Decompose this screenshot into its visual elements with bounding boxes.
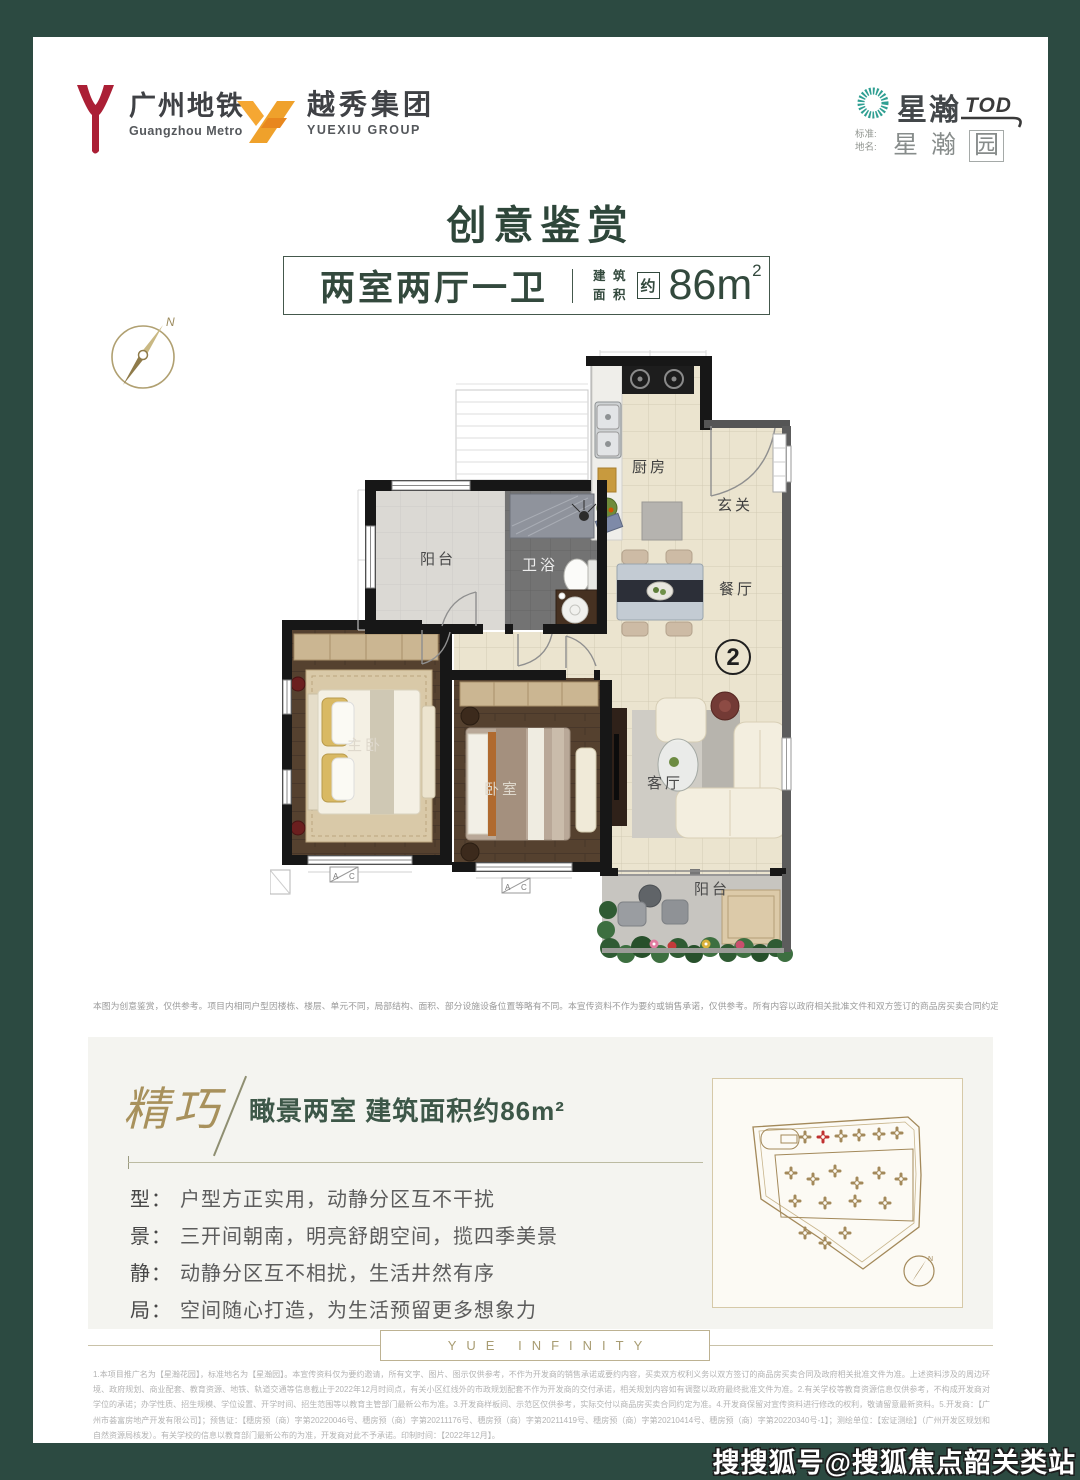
ac-platform-hatch bbox=[456, 384, 588, 480]
footer-brand-box: YUE INFINITY bbox=[380, 1330, 710, 1361]
site-compass-icon: N bbox=[904, 1256, 934, 1286]
watermark: 搜搜狐号@搜狐焦点韶关类站 bbox=[713, 1441, 1076, 1480]
floor-plan: A C A C 厨房 玄关 阳台 卫浴 餐厅 主卧 卧室 客厅 阳台 2 bbox=[270, 350, 800, 965]
armchair bbox=[656, 698, 706, 742]
room-label-balcony-top: 阳台 bbox=[420, 551, 456, 568]
site-plan: N bbox=[713, 1079, 962, 1307]
feature-headline: 瞰景两室 建筑面积约86m² bbox=[249, 1091, 565, 1128]
kitchen-cabinet bbox=[642, 502, 682, 540]
standard-name-label: 标准: 地名: bbox=[855, 129, 877, 155]
room-label-living: 客厅 bbox=[647, 775, 683, 792]
balcony-chair bbox=[662, 900, 688, 924]
svg-text:A: A bbox=[333, 872, 339, 881]
gzmetro-cn: 广州地铁 bbox=[129, 93, 245, 120]
sofa-horizontal bbox=[676, 788, 786, 838]
poster-card: 广州地铁 Guangzhou Metro 越秀集团 YUEXIU GROUP 星… bbox=[33, 37, 1048, 1443]
svg-text:A: A bbox=[505, 883, 511, 892]
balcony-mat bbox=[722, 890, 780, 944]
basin bbox=[562, 597, 588, 623]
site-compass-north: N bbox=[928, 1256, 933, 1263]
area-label: 建 筑面 积 bbox=[593, 267, 627, 305]
yuexiu-en: YUEXIU GROUP bbox=[307, 123, 435, 137]
room-label-bath: 卫浴 bbox=[522, 557, 558, 574]
svg-text:C: C bbox=[349, 872, 355, 881]
layout-spec: 两室两厅一卫 bbox=[320, 260, 548, 311]
feature-point: 静：动静分区互不相扰，生活井然有序 bbox=[130, 1257, 558, 1294]
bedroom-bench bbox=[576, 748, 596, 832]
disclaimer-text: 本图为创意鉴赏，仅供参考。项目内相同户型因楼栋、楼层、单元不同，局部结构、面积、… bbox=[93, 999, 998, 1012]
feature-accent-word: 精巧 bbox=[123, 1073, 223, 1139]
room-label-kitchen: 厨房 bbox=[632, 459, 668, 476]
room-label-dining: 餐厅 bbox=[719, 581, 755, 598]
shoe-cabinet bbox=[773, 434, 786, 492]
yuexiu-group-icon bbox=[235, 95, 297, 147]
shower-head bbox=[579, 511, 589, 521]
compass-icon: N bbox=[99, 309, 189, 399]
feature-point: 景：三开间朝南，明亮舒朗空间，揽四季美景 bbox=[130, 1220, 558, 1257]
bedroom-wardrobe bbox=[460, 682, 598, 706]
balcony-chair bbox=[618, 902, 646, 926]
svg-text:C: C bbox=[521, 883, 527, 892]
room-label-foyer: 玄关 bbox=[717, 497, 753, 514]
area-value: 86m2 bbox=[669, 264, 762, 307]
yuexiu-cn: 越秀集团 bbox=[307, 91, 435, 119]
approx-badge: 约 bbox=[637, 272, 660, 299]
standard-place-name: 星瀚园 bbox=[893, 125, 1004, 161]
tv bbox=[614, 734, 619, 800]
feature-points: 型：户型方正实用，动静分区互不干扰 景：三开间朝南，明亮舒朗空间，揽四季美景 静… bbox=[130, 1183, 558, 1331]
compass-north-label: N bbox=[166, 315, 175, 329]
room-label-bedroom: 卧室 bbox=[484, 781, 520, 798]
unit-number-badge: 2 bbox=[716, 640, 750, 674]
guangzhou-metro-icon bbox=[73, 85, 119, 159]
xinghan-sunburst-icon bbox=[853, 83, 893, 123]
gzmetro-en: Guangzhou Metro bbox=[129, 124, 245, 138]
footer-brand-en: YUE INFINITY bbox=[438, 1338, 653, 1353]
page-title: 创意鉴赏 bbox=[33, 193, 1048, 251]
toilet bbox=[564, 559, 590, 593]
brand-name: 星瀚 bbox=[897, 85, 961, 129]
master-bench bbox=[422, 706, 435, 798]
fine-print: 1.本项目推广名为【星瀚花园】，标准地名为【星瀚园】。本宣传资料仅为要约邀请，所… bbox=[93, 1367, 990, 1443]
feature-point: 型：户型方正实用，动静分区互不干扰 bbox=[130, 1183, 558, 1220]
feature-point: 局：空间随心打造，为生活预留更多想象力 bbox=[130, 1294, 558, 1331]
site-plan-box: N bbox=[712, 1078, 963, 1308]
unit-number: 2 bbox=[726, 644, 739, 671]
spec-box: 两室两厅一卫 建 筑面 积 约 86m2 bbox=[283, 256, 770, 315]
guangzhou-metro-wordmark: 广州地铁 Guangzhou Metro bbox=[129, 93, 245, 138]
room-label-master: 主卧 bbox=[347, 737, 383, 754]
spec-divider bbox=[572, 269, 573, 303]
room-label-balcony-bottom: 阳台 bbox=[694, 881, 730, 898]
yuexiu-wordmark: 越秀集团 YUEXIU GROUP bbox=[307, 91, 435, 137]
feature-divider bbox=[128, 1162, 703, 1163]
